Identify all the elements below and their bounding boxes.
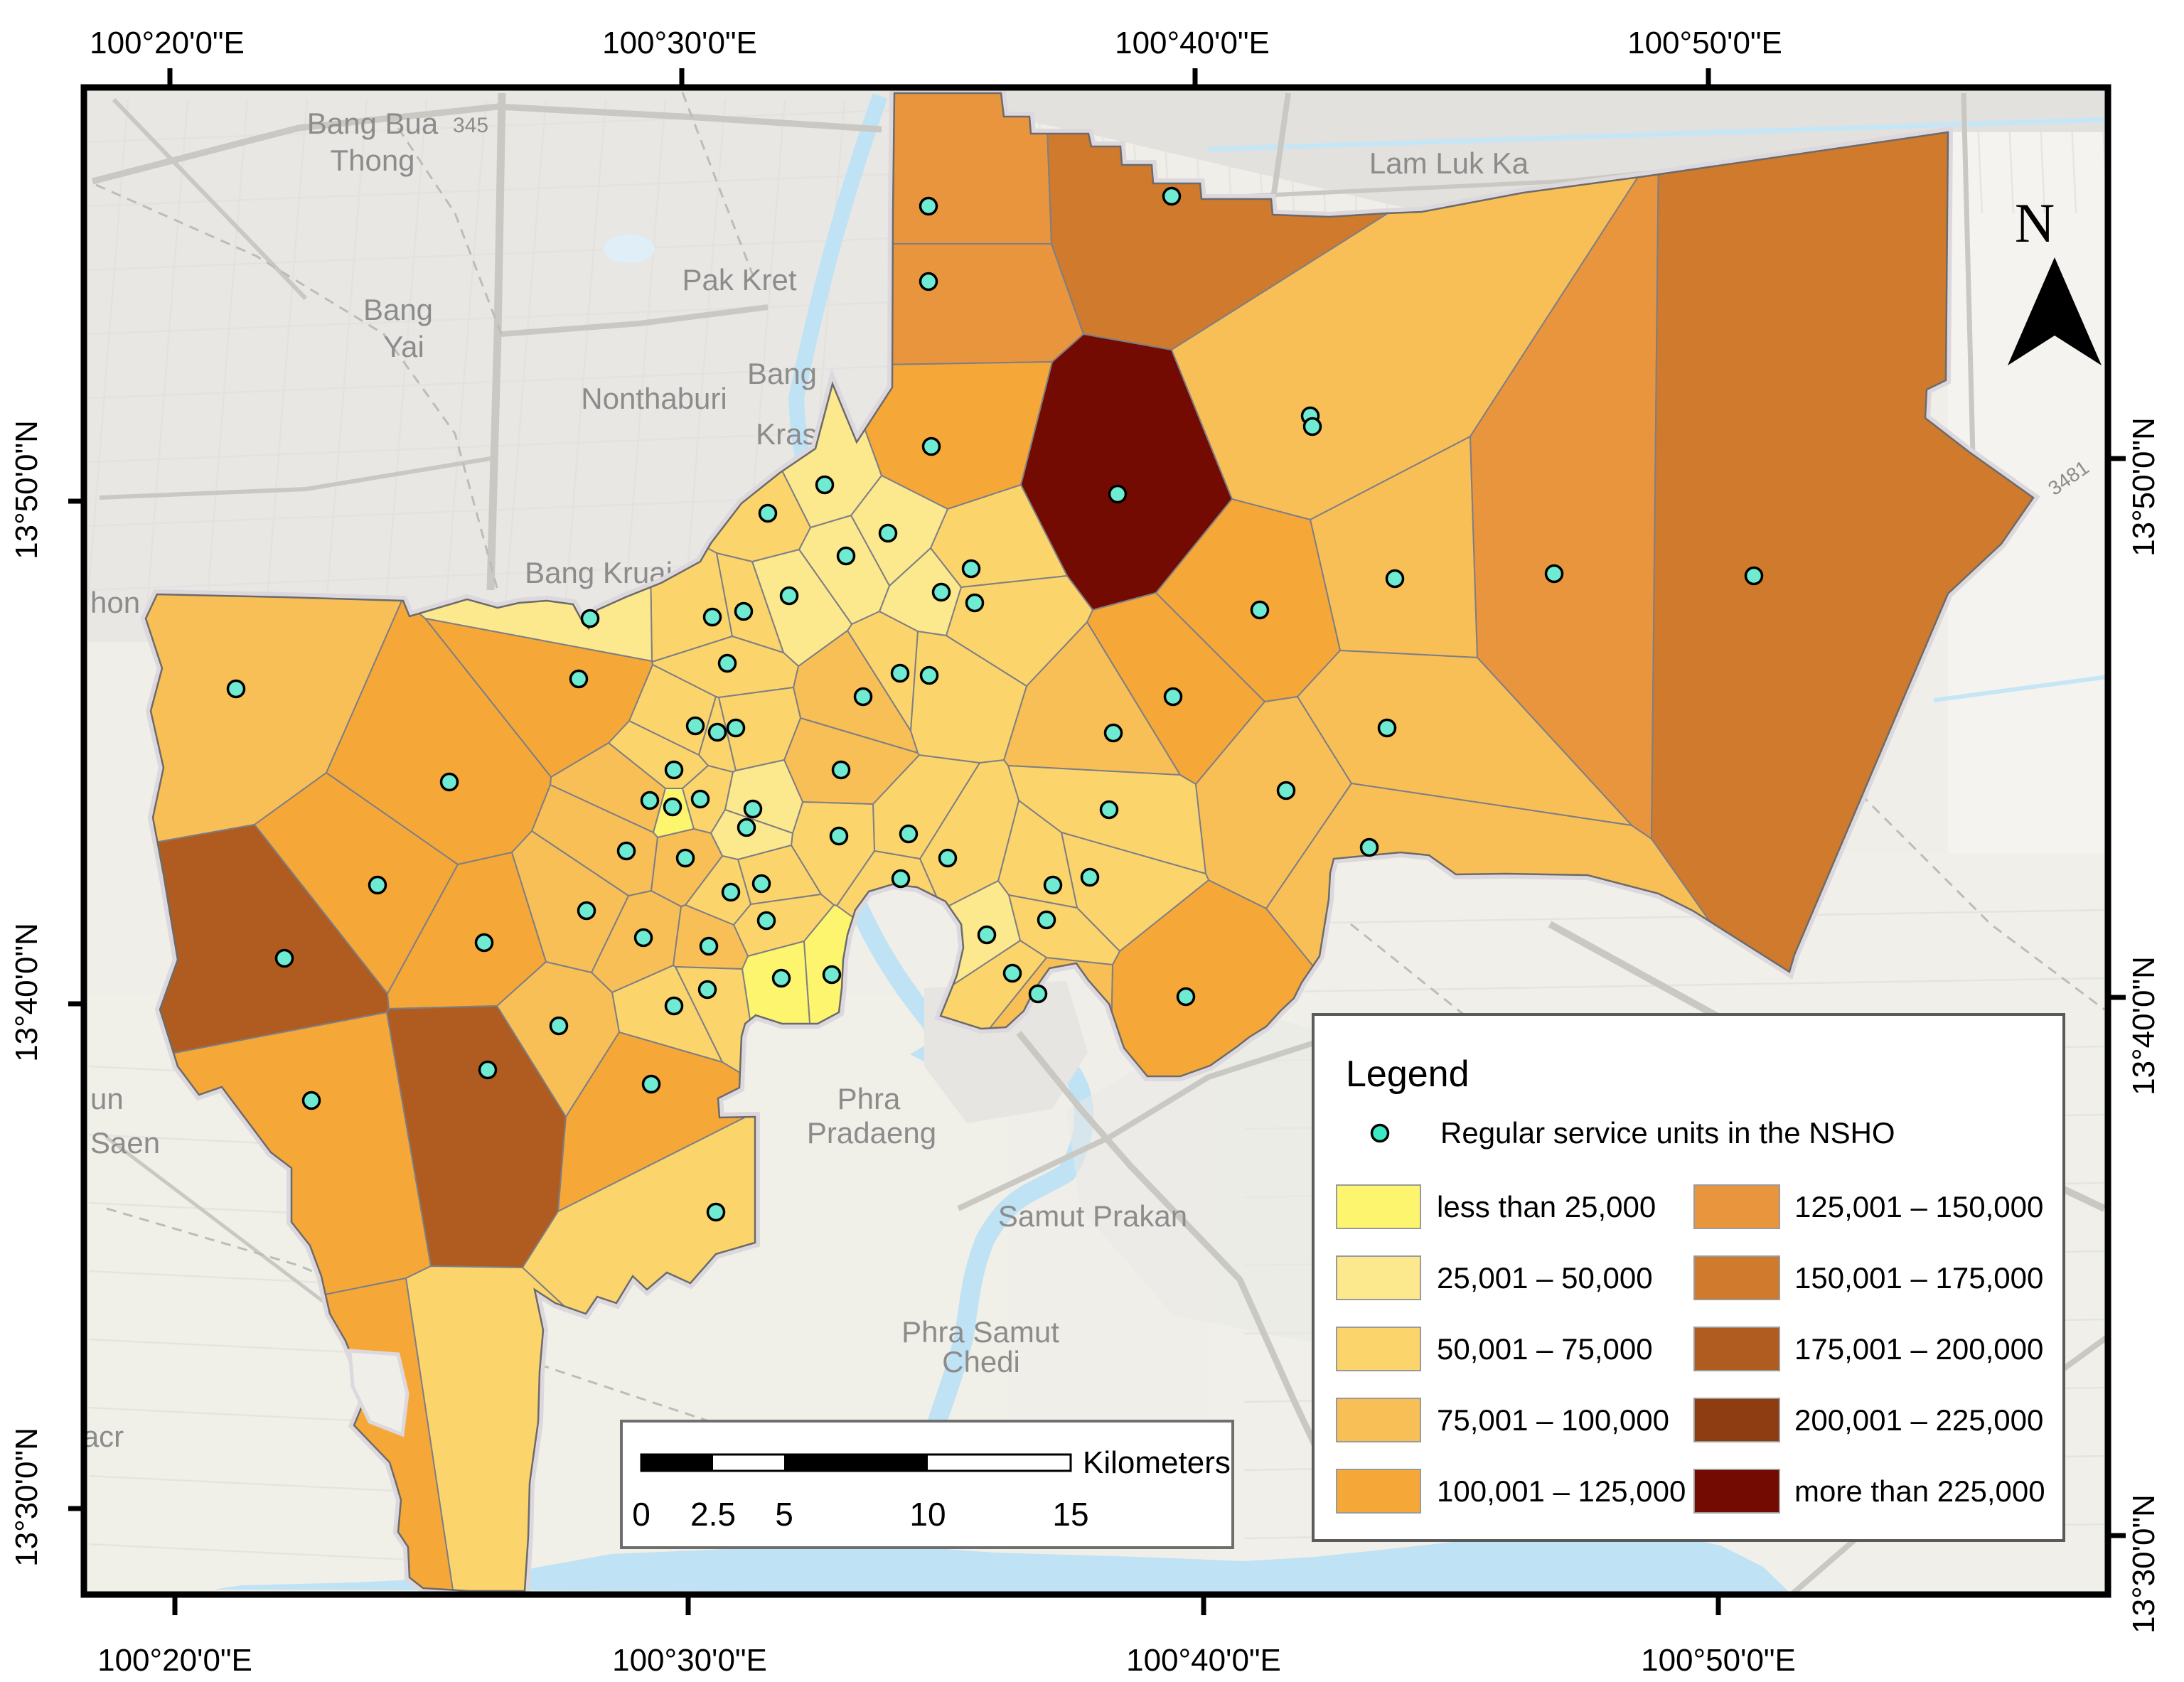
svg-text:13°40'0"N: 13°40'0"N bbox=[9, 923, 44, 1062]
svg-text:Bang: Bang bbox=[747, 357, 817, 390]
svg-text:Yai: Yai bbox=[383, 330, 424, 363]
svg-text:100,001 – 125,000: 100,001 – 125,000 bbox=[1437, 1474, 1686, 1508]
svg-text:Bang: Bang bbox=[363, 293, 433, 326]
svg-text:13°40'0"N: 13°40'0"N bbox=[2126, 956, 2161, 1096]
svg-text:25,001 – 50,000: 25,001 – 50,000 bbox=[1437, 1261, 1653, 1295]
svg-text:200,001 – 225,000: 200,001 – 225,000 bbox=[1794, 1403, 2043, 1437]
svg-text:Bang Bua: Bang Bua bbox=[307, 107, 439, 140]
svg-text:2.5: 2.5 bbox=[690, 1496, 736, 1533]
svg-text:150,001 – 175,000: 150,001 – 175,000 bbox=[1794, 1261, 2043, 1295]
svg-text:0: 0 bbox=[632, 1496, 651, 1533]
svg-text:75,001 – 100,000: 75,001 – 100,000 bbox=[1437, 1403, 1669, 1437]
svg-text:Nonthaburi: Nonthaburi bbox=[581, 382, 727, 415]
svg-text:100°50'0"E: 100°50'0"E bbox=[1627, 26, 1782, 60]
svg-text:Phra: Phra bbox=[837, 1082, 901, 1115]
svg-text:5: 5 bbox=[775, 1496, 793, 1533]
svg-text:un: un bbox=[90, 1082, 124, 1115]
svg-text:100°40'0"E: 100°40'0"E bbox=[1126, 1643, 1281, 1678]
svg-text:Pradaeng: Pradaeng bbox=[807, 1116, 936, 1150]
svg-text:N: N bbox=[2015, 192, 2055, 254]
svg-text:13°50'0"N: 13°50'0"N bbox=[2126, 417, 2161, 557]
svg-text:13°50'0"N: 13°50'0"N bbox=[9, 420, 44, 559]
svg-text:Samut Prakan: Samut Prakan bbox=[998, 1199, 1187, 1233]
svg-text:Chedi: Chedi bbox=[942, 1345, 1020, 1378]
svg-text:Legend: Legend bbox=[1346, 1054, 1470, 1095]
svg-text:100°30'0"E: 100°30'0"E bbox=[612, 1643, 767, 1678]
svg-text:Lam Luk Ka: Lam Luk Ka bbox=[1369, 146, 1529, 180]
svg-text:13°30'0"N: 13°30'0"N bbox=[2126, 1494, 2161, 1634]
svg-text:less than 25,000: less than 25,000 bbox=[1437, 1190, 1656, 1223]
svg-text:100°40'0"E: 100°40'0"E bbox=[1115, 26, 1270, 60]
svg-text:345: 345 bbox=[453, 114, 488, 137]
svg-text:acr: acr bbox=[82, 1420, 124, 1453]
svg-text:Kilometers: Kilometers bbox=[1083, 1445, 1231, 1480]
svg-text:13°30'0"N: 13°30'0"N bbox=[9, 1427, 44, 1567]
svg-text:175,001 – 200,000: 175,001 – 200,000 bbox=[1794, 1332, 2043, 1366]
svg-text:more than 225,000: more than 225,000 bbox=[1794, 1474, 2045, 1508]
svg-text:50,001 – 75,000: 50,001 – 75,000 bbox=[1437, 1332, 1653, 1366]
svg-text:Thong: Thong bbox=[330, 144, 414, 177]
svg-text:100°30'0"E: 100°30'0"E bbox=[602, 26, 757, 60]
svg-text:Saen: Saen bbox=[90, 1126, 160, 1159]
svg-text:100°20'0"E: 100°20'0"E bbox=[90, 26, 245, 60]
svg-text:Pak Kret: Pak Kret bbox=[682, 263, 796, 296]
svg-text:15: 15 bbox=[1052, 1496, 1088, 1533]
svg-text:125,001 – 150,000: 125,001 – 150,000 bbox=[1794, 1190, 2043, 1223]
svg-text:Regular service units in the N: Regular service units in the NSHO bbox=[1440, 1116, 1895, 1150]
svg-text:100°50'0"E: 100°50'0"E bbox=[1641, 1643, 1796, 1678]
svg-text:10: 10 bbox=[909, 1496, 946, 1533]
svg-text:Phra Samut: Phra Samut bbox=[901, 1315, 1059, 1349]
svg-text:100°20'0"E: 100°20'0"E bbox=[97, 1643, 252, 1678]
svg-text:hon: hon bbox=[90, 586, 140, 619]
